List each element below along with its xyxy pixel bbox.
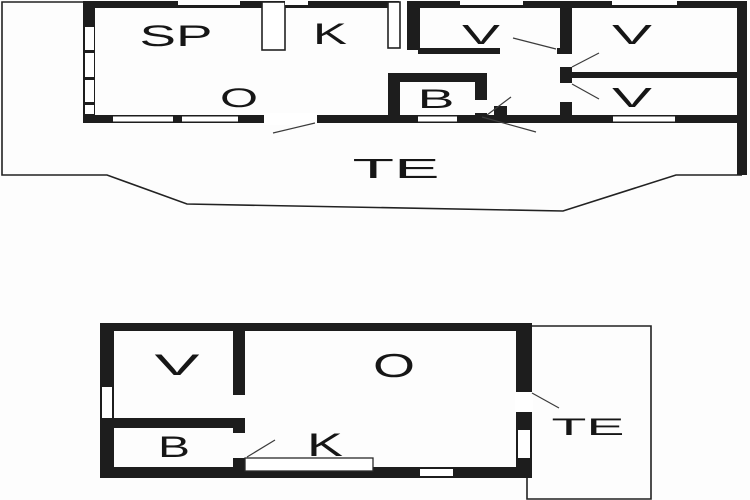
lower-terrace-door-opening: [515, 392, 533, 412]
lower-terrace-outline: [527, 326, 651, 499]
room-label-o: O: [373, 347, 415, 384]
upper-plan: SP K V V V O B TE: [2, 0, 747, 211]
lower-plan: V O B K TE: [100, 323, 651, 499]
room-label-sp: SP: [140, 20, 213, 53]
room-label-k: K: [313, 18, 347, 51]
upper-door-openings: [264, 113, 317, 125]
terrace-label: TE: [353, 153, 440, 184]
floor-plan-diagram: SP K V V V O B TE: [0, 0, 750, 500]
lower-door-openings: [515, 392, 533, 412]
terrace-label: TE: [552, 414, 625, 441]
room-label-v: V: [155, 349, 200, 382]
room-label-v2: V: [612, 19, 653, 50]
upper-terrace-door-opening: [264, 113, 317, 125]
room-label-k: K: [307, 427, 343, 463]
room-label-v1: V: [462, 19, 501, 50]
lower-door-swing-lines: [247, 393, 559, 457]
room-label-v3: V: [612, 82, 653, 113]
upper-windows: [84, 0, 677, 122]
room-label-b: B: [418, 84, 455, 114]
room-label-b: B: [158, 431, 190, 464]
upper-hollow-partition-sp-k: [262, 2, 285, 50]
upper-hollow-partition-k-v: [388, 2, 400, 48]
floor-plan-page: SP K V V V O B TE: [0, 0, 750, 500]
room-label-o: O: [220, 83, 258, 113]
